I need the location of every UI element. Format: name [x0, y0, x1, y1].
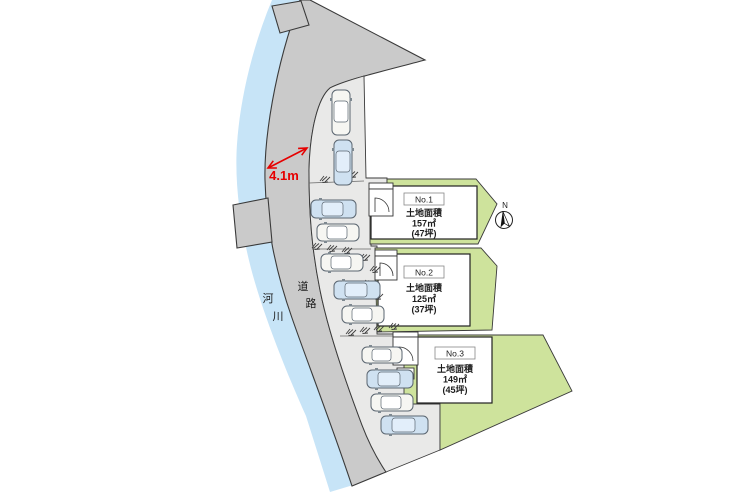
car-icon: [371, 392, 413, 413]
lot-3-area: 149㎡: [443, 374, 467, 385]
road-label: 道: [298, 279, 309, 293]
lot-2-id: No.2: [415, 268, 433, 278]
car-icon: [381, 414, 428, 436]
lot-2-entrance-icon: [375, 250, 397, 280]
lot-3-id: No.3: [446, 349, 464, 359]
river-label: 川: [273, 311, 284, 323]
lot-3-tsubo: (45坪): [442, 384, 467, 395]
lot-2-tsubo: (37坪): [411, 304, 436, 315]
road-width-label: 4.1m: [269, 168, 299, 183]
north-arrow-icon: N: [496, 201, 513, 229]
car-icon: [321, 252, 363, 273]
car-icon: [362, 345, 402, 365]
bridge-left: [233, 198, 272, 248]
car-icon: [317, 222, 359, 243]
lot-3-area-label: 土地面積: [437, 363, 474, 374]
car-icon: [330, 90, 352, 135]
lot-1-id: No.1: [415, 195, 433, 205]
car-icon: [311, 198, 356, 220]
car-icon: [332, 140, 354, 185]
car-icon: [334, 279, 380, 301]
road-label: 路: [306, 297, 317, 310]
north-label: N: [502, 201, 508, 210]
site-plan: No.1 土地面積 157㎡ (47坪) No.2 土地面積 125㎡ (37坪…: [0, 0, 735, 500]
river-label: 河: [263, 292, 274, 305]
lot-1-area-label: 土地面積: [406, 207, 443, 218]
lot-1-area: 157㎡: [412, 218, 436, 229]
lot-2-area-label: 土地面積: [406, 282, 443, 293]
car-icon: [342, 304, 384, 325]
car-icon: [367, 368, 413, 390]
lot-1-tsubo: (47坪): [411, 228, 436, 239]
lot-2-area: 125㎡: [412, 293, 436, 304]
lot-1-entrance-icon: [369, 183, 393, 216]
